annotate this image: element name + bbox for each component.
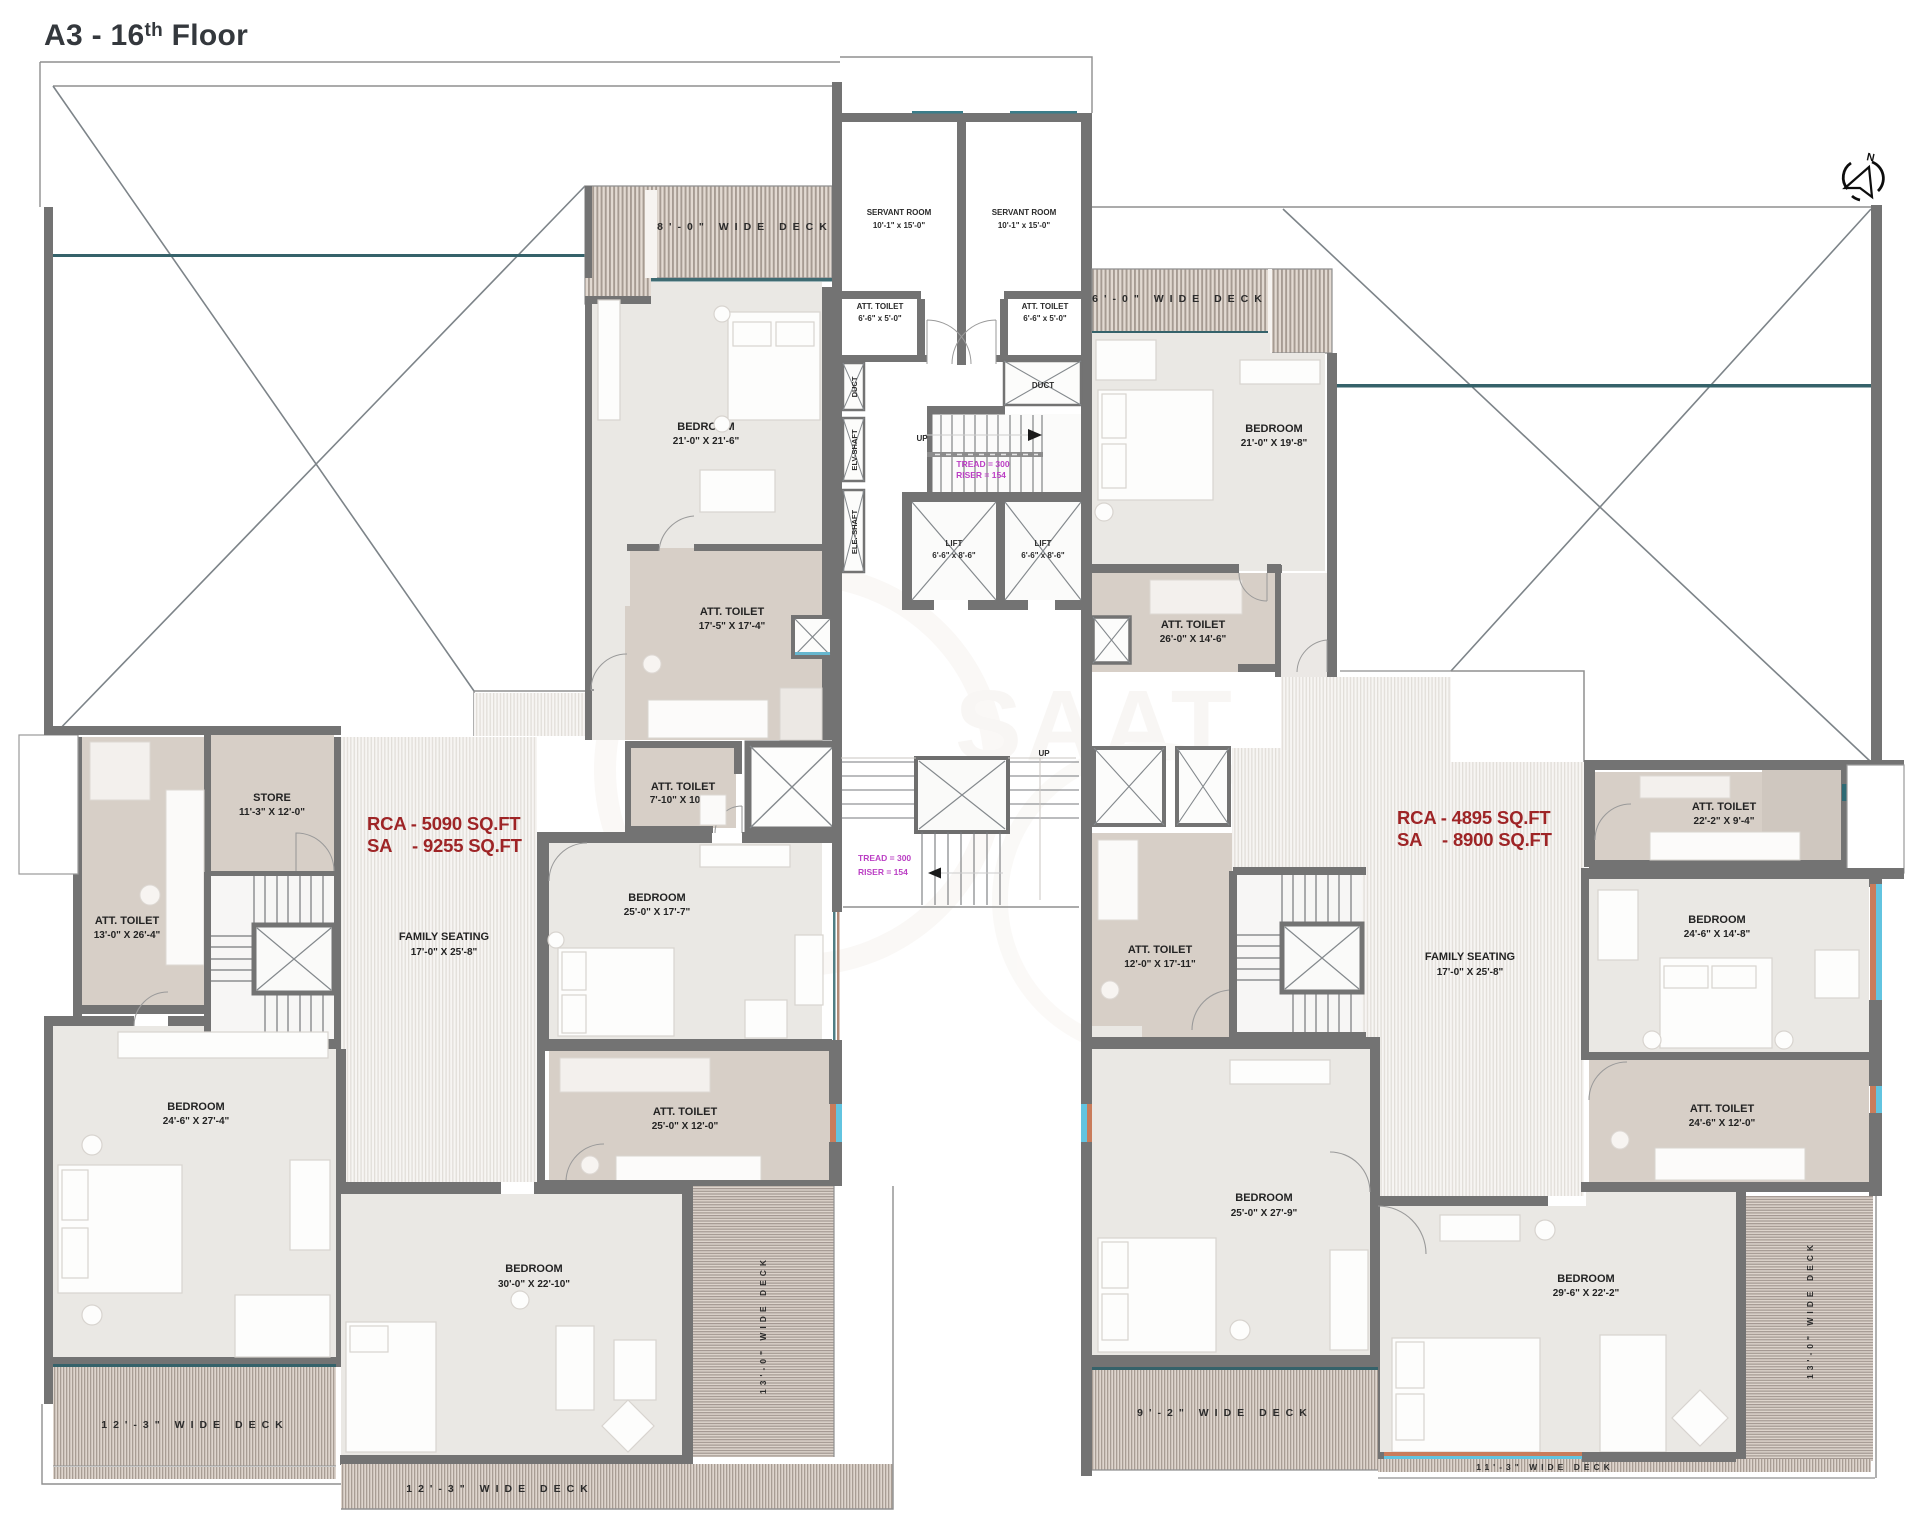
svg-text:DUCT: DUCT [850,376,859,397]
svg-text:6'-6" x 8'-6": 6'-6" x 8'-6" [932,551,976,560]
svg-text:10'-1" x 15'-0": 10'-1" x 15'-0" [998,221,1051,230]
svg-text:9'-2" WIDE DECK: 9'-2" WIDE DECK [1137,1407,1313,1419]
svg-text:22'-2" X 9'-4": 22'-2" X 9'-4" [1694,816,1755,827]
svg-text:TREAD = 300: TREAD = 300 [858,853,911,863]
svg-text:ATT. TOILET: ATT. TOILET [1128,944,1193,956]
svg-text:11'-3" X 12'-0": 11'-3" X 12'-0" [239,807,305,818]
svg-text:25'-0" X 17'-7": 25'-0" X 17'-7" [624,907,691,918]
svg-text:29'-6" X 22'-2": 29'-6" X 22'-2" [1553,1288,1620,1299]
svg-text:12'-3" WIDE DECK: 12'-3" WIDE DECK [406,1483,594,1495]
svg-text:RISER = 154: RISER = 154 [858,867,908,877]
svg-text:6'-6" x 5'-0": 6'-6" x 5'-0" [858,314,902,323]
svg-text:6'-6" x 5'-0": 6'-6" x 5'-0" [1023,314,1067,323]
svg-text:BEDROOM: BEDROOM [628,892,685,904]
svg-text:ATT. TOILET: ATT. TOILET [1692,801,1757,813]
svg-text:25'-0" X 12'-0": 25'-0" X 12'-0" [652,1121,719,1132]
svg-text:FAMILY SEATING: FAMILY SEATING [399,931,489,943]
svg-text:ELV-SHAFT: ELV-SHAFT [850,429,859,471]
svg-text:SERVANT ROOM: SERVANT ROOM [992,208,1057,217]
svg-text:25'-0" X 27'-9": 25'-0" X 27'-9" [1231,1208,1298,1219]
svg-text:SERVANT ROOM: SERVANT ROOM [867,208,932,217]
svg-text:17'-5" X 17'-4": 17'-5" X 17'-4" [699,621,766,632]
svg-text:21'-0" X 19'-8": 21'-0" X 19'-8" [1241,438,1308,449]
svg-text:DUCT: DUCT [1032,381,1054,390]
svg-text:ATT. TOILET: ATT. TOILET [653,1106,718,1118]
svg-text:ATT. TOILET: ATT. TOILET [95,915,160,927]
svg-text:12'-3" WIDE DECK: 12'-3" WIDE DECK [101,1419,289,1431]
svg-text:11'-3" WIDE DECK: 11'-3" WIDE DECK [1476,1462,1614,1472]
svg-text:ATT. TOILET: ATT. TOILET [857,302,904,311]
svg-text:UP: UP [916,434,928,443]
svg-text:ELE.-SHAFT: ELE.-SHAFT [850,510,859,555]
svg-text:13'-0" WIDE DECK: 13'-0" WIDE DECK [758,1256,768,1394]
svg-text:SA - 8900 SQ.FT: SA - 8900 SQ.FT [1397,829,1553,850]
svg-text:ATT. TOILET: ATT. TOILET [700,606,765,618]
svg-text:ATT. TOILET: ATT. TOILET [1161,619,1226,631]
svg-text:10'-1" x 15'-0": 10'-1" x 15'-0" [873,221,926,230]
svg-text:12'-0" X 17'-11": 12'-0" X 17'-11" [1124,959,1196,970]
svg-text:24'-6" X 12'-0": 24'-6" X 12'-0" [1689,1118,1756,1129]
svg-text:30'-0" X 22'-10": 30'-0" X 22'-10" [498,1279,570,1290]
svg-text:TREAD = 300: TREAD = 300 [956,459,1009,469]
svg-text:RCA - 5090 SQ.FT: RCA - 5090 SQ.FT [367,813,521,834]
svg-text:17'-0" X 25'-8": 17'-0" X 25'-8" [1437,967,1504,978]
svg-text:17'-0" X 25'-8": 17'-0" X 25'-8" [411,947,478,958]
svg-text:BEDROOM: BEDROOM [1688,914,1745,926]
svg-text:13'-0" X 26'-4": 13'-0" X 26'-4" [94,930,161,941]
svg-text:RCA - 4895 SQ.FT: RCA - 4895 SQ.FT [1397,807,1551,828]
svg-text:26'-0" X 14'-6": 26'-0" X 14'-6" [1160,634,1227,645]
svg-text:SA - 9255 SQ.FT: SA - 9255 SQ.FT [367,835,523,856]
svg-text:ATT. TOILET: ATT. TOILET [1022,302,1069,311]
svg-text:ATT. TOILET: ATT. TOILET [1690,1103,1755,1115]
svg-text:6'-6" x 8'-6": 6'-6" x 8'-6" [1021,551,1065,560]
svg-text:BEDROOM: BEDROOM [1235,1192,1292,1204]
svg-text:24'-6" X 14'-8": 24'-6" X 14'-8" [1684,929,1751,940]
svg-text:UP: UP [1038,749,1050,758]
svg-text:BEDROOM: BEDROOM [505,1263,562,1275]
svg-text:FAMILY SEATING: FAMILY SEATING [1425,951,1515,963]
svg-text:13'-0" WIDE DECK: 13'-0" WIDE DECK [1805,1241,1815,1379]
svg-text:21'-0" X 21'-6": 21'-0" X 21'-6" [673,436,740,447]
svg-text:BEDROOM: BEDROOM [1557,1273,1614,1285]
svg-text:24'-6" X 27'-4": 24'-6" X 27'-4" [163,1116,230,1127]
svg-text:BEDROOM: BEDROOM [167,1101,224,1113]
svg-text:BEDROOM: BEDROOM [1245,423,1302,435]
svg-text:6'-0" WIDE DECK: 6'-0" WIDE DECK [1092,293,1268,305]
svg-text:8'-0" WIDE DECK: 8'-0" WIDE DECK [657,221,833,233]
svg-text:RISER = 154: RISER = 154 [956,470,1006,480]
svg-text:STORE: STORE [253,792,291,804]
svg-text:LIFT: LIFT [946,539,963,548]
svg-text:ATT. TOILET: ATT. TOILET [651,781,716,793]
svg-text:LIFT: LIFT [1035,539,1052,548]
